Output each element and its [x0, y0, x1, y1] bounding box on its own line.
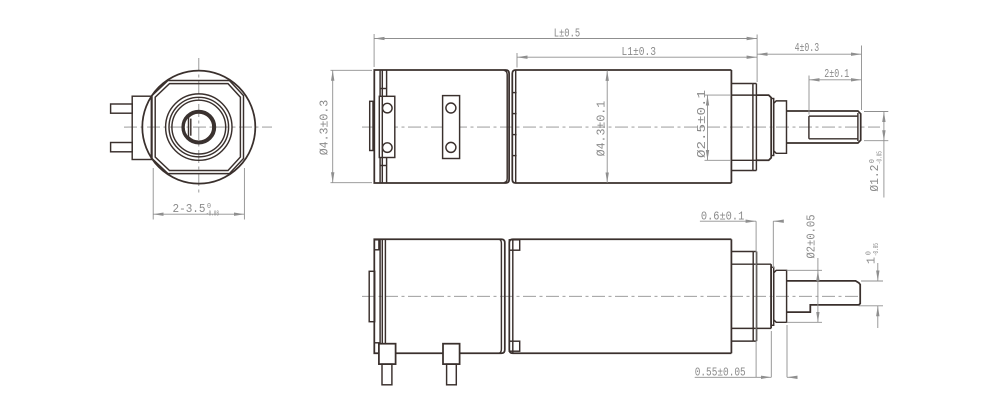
- svg-text:-0.05: -0.05: [877, 151, 885, 164]
- svg-text:Ø1.2: Ø1.2: [868, 165, 882, 192]
- svg-text:Ø4.3±0.1: Ø4.3±0.1: [594, 101, 608, 157]
- svg-text:0: 0: [865, 251, 873, 255]
- svg-text:0: 0: [869, 159, 877, 163]
- svg-text:2±0.1: 2±0.1: [824, 67, 849, 81]
- svg-text:Ø2.5±0.1: Ø2.5±0.1: [695, 90, 709, 158]
- svg-text:2-3.5: 2-3.5: [173, 202, 206, 216]
- svg-text:L1±0.3: L1±0.3: [622, 45, 657, 59]
- svg-text:4±0.3: 4±0.3: [795, 41, 820, 55]
- svg-text:-0.05: -0.05: [873, 243, 881, 256]
- svg-text:-0.08: -0.08: [206, 211, 219, 219]
- svg-text:Ø4.3±0.3: Ø4.3±0.3: [318, 100, 332, 156]
- svg-text:Ø2±0.05: Ø2±0.05: [805, 215, 819, 259]
- svg-text:L±0.5: L±0.5: [554, 26, 581, 40]
- svg-text:1: 1: [865, 257, 879, 264]
- svg-text:0: 0: [207, 203, 211, 211]
